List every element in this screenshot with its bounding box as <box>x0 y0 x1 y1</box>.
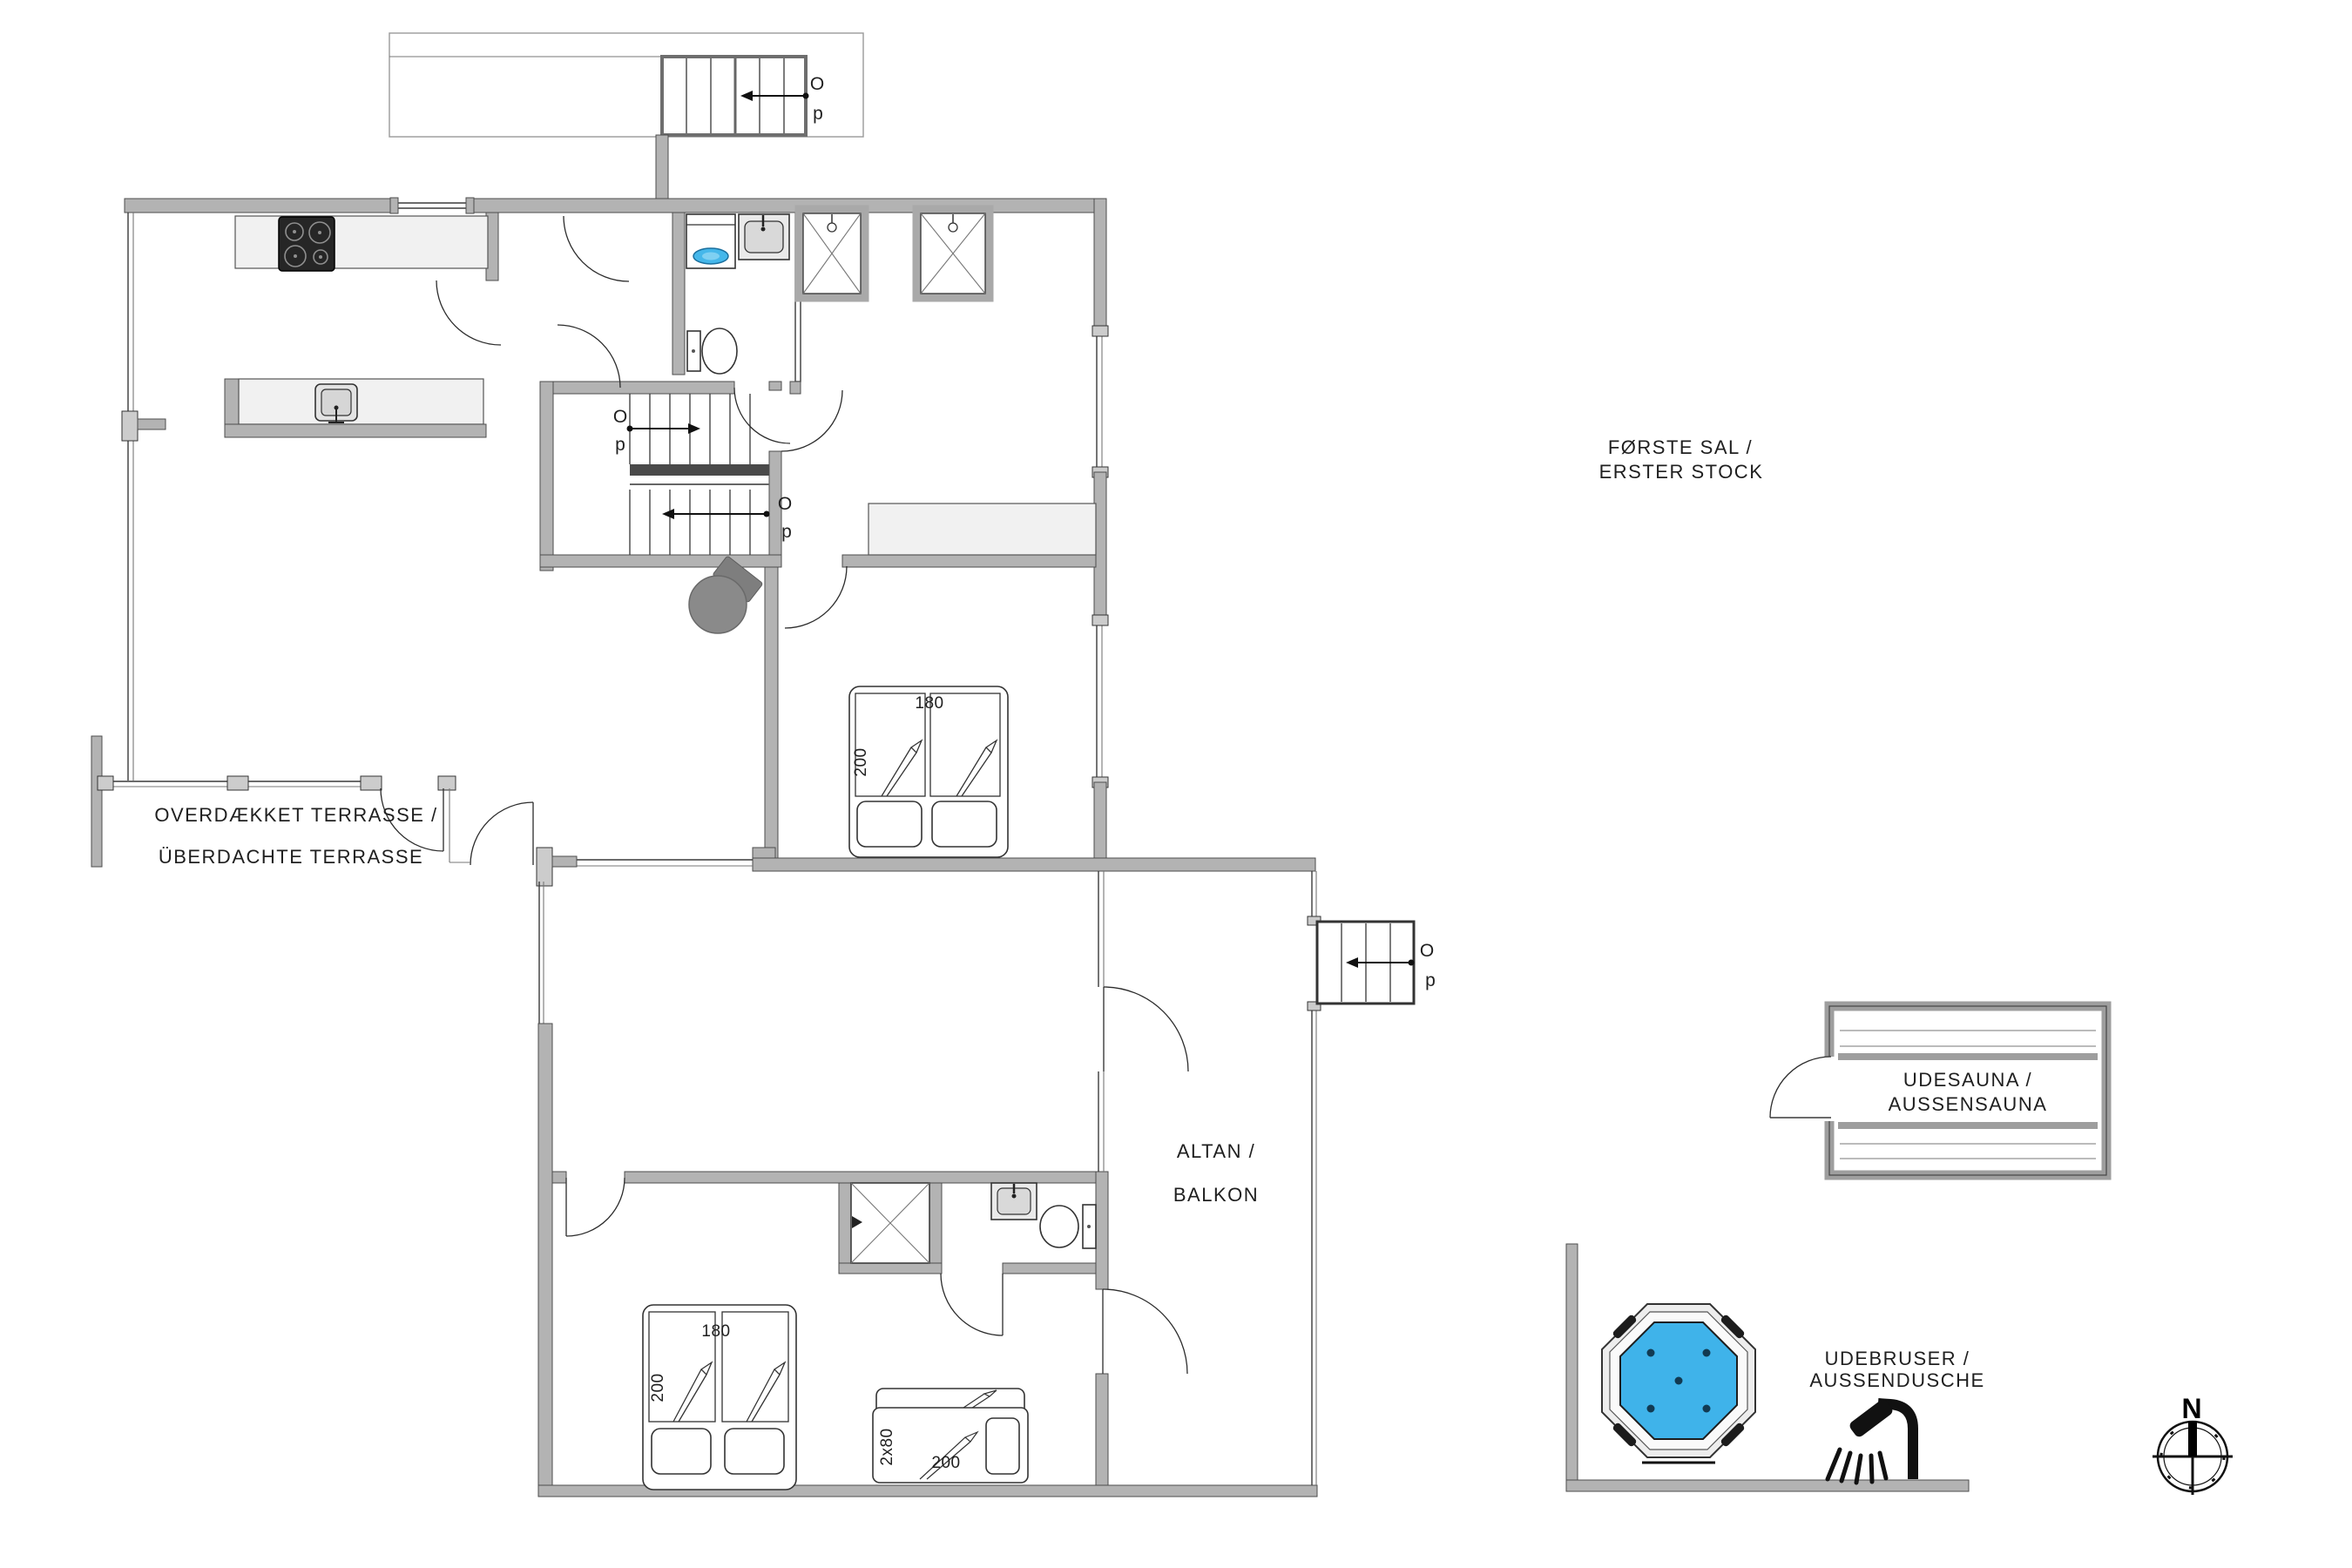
outdoor-shower-label-1: UDEBRUSER / <box>1825 1348 1970 1369</box>
bunk-length-label: 200 <box>931 1454 960 1472</box>
outdoor-shower-label-2: AUSSENDUSCHE <box>1809 1369 1984 1391</box>
balcony: ALTAN / BALKON O p <box>1098 871 1436 1485</box>
bed2-width-label: 180 <box>701 1322 730 1341</box>
floorplan-drawing: O p <box>0 0 2352 1568</box>
outdoor-shower-icon <box>1828 1397 1913 1483</box>
bed1-length-label: 200 <box>852 747 870 776</box>
balcony-stair-p: p <box>1425 970 1436 990</box>
terrace-label-1: OVERDÆKKET TERRASSE / <box>154 804 437 826</box>
annex-sink-icon <box>991 1183 1037 1220</box>
sauna-label-1: UDESAUNA / <box>1903 1069 2032 1091</box>
upper-bathroom <box>686 214 789 374</box>
bathroom-sink-icon <box>739 214 789 260</box>
balcony-label-1: ALTAN / <box>1177 1140 1255 1162</box>
skylight-box-1 <box>799 209 865 298</box>
inner-stair-low-p: p <box>781 522 792 542</box>
stair-up-label-o: O <box>810 74 824 94</box>
compass-north-label: N <box>2181 1393 2201 1424</box>
sauna-label-2: AUSSENSAUNA <box>1889 1093 2048 1115</box>
outdoor-sauna: UDESAUNA / AUSSENSAUNA <box>1770 1006 2106 1175</box>
inner-stair-up-p: p <box>615 435 625 455</box>
floor-label-2: ERSTER STOCK <box>1599 461 1764 483</box>
house-walls <box>122 198 1315 886</box>
balcony-stair-o: O <box>1420 941 1434 961</box>
double-bed-2: 180 200 <box>643 1305 796 1490</box>
floorplan-page: O p <box>0 0 2352 1568</box>
inner-staircase: O p O p <box>613 394 792 555</box>
inner-stair-up-o: O <box>613 407 627 427</box>
skylight-box-2 <box>916 209 990 298</box>
compass-icon: N <box>2153 1393 2233 1495</box>
wardrobe <box>868 504 1096 555</box>
balcony-label-2: BALKON <box>1173 1184 1259 1206</box>
stair-up-label-p: p <box>813 104 823 124</box>
covered-terrace: OVERDÆKKET TERRASSE / ÜBERDACHTE TERRASS… <box>91 736 544 1024</box>
hot-tub-area: UDEBRUSER / AUSSENDUSCHE <box>1566 1244 1985 1491</box>
balcony-staircase: O p <box>1317 922 1436 1004</box>
annex-toilet-icon <box>1040 1205 1096 1248</box>
floor-label-1: FØRSTE SAL / <box>1608 436 1753 458</box>
hot-tub-icon <box>1602 1304 1755 1463</box>
kitchen-sink-icon <box>315 384 357 422</box>
cooktop-icon <box>279 217 335 271</box>
bunk-width-label: 2x80 <box>878 1428 896 1465</box>
bed1-width-label: 180 <box>915 694 943 713</box>
bunk-bed: 2x80 200 <box>873 1389 1028 1483</box>
floor-title: FØRSTE SAL / ERSTER STOCK <box>1599 436 1764 483</box>
kitchen <box>225 216 488 437</box>
toilet-icon <box>687 328 737 374</box>
double-bed-1: 180 200 <box>849 686 1008 857</box>
exterior-top-staircase: O p <box>389 33 863 199</box>
terrace-label-2: ÜBERDACHTE TERRASSE <box>159 846 423 868</box>
washing-machine-icon <box>686 214 735 268</box>
inner-stair-low-o: O <box>778 494 792 514</box>
annex-bath-fixtures <box>991 1183 1096 1248</box>
bed2-length-label: 200 <box>649 1373 667 1402</box>
